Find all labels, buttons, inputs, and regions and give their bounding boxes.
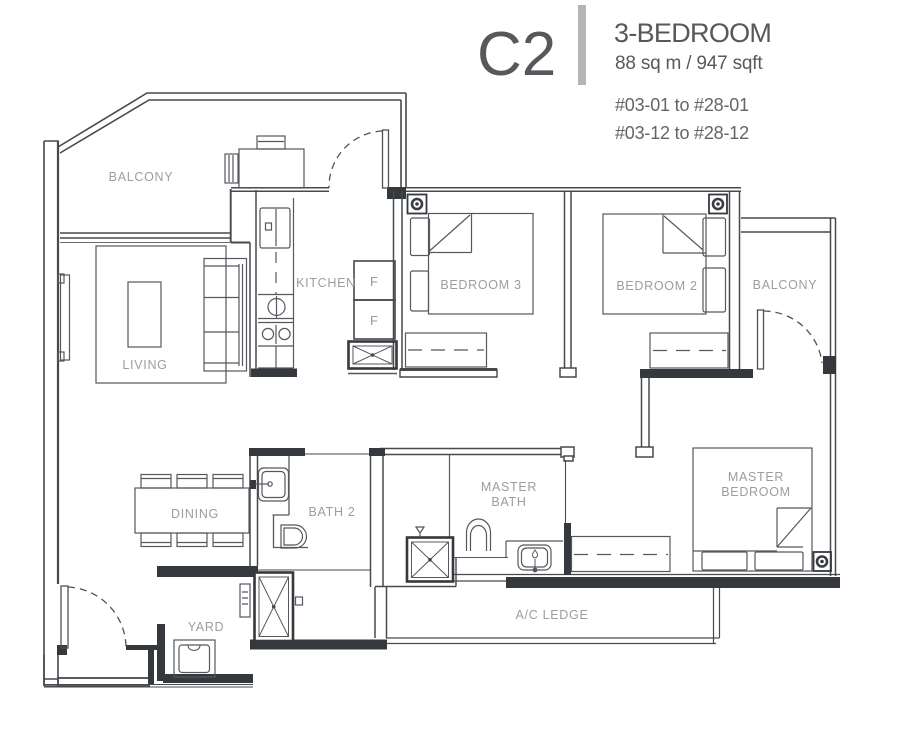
svg-text:BEDROOM 2: BEDROOM 2 (616, 279, 697, 293)
svg-text:LIVING: LIVING (122, 358, 167, 372)
svg-text:BATH: BATH (491, 495, 526, 509)
svg-text:KITCHEN: KITCHEN (296, 276, 356, 290)
svg-text:BALCONY: BALCONY (109, 170, 174, 184)
svg-text:#03-12 to #28-12: #03-12 to #28-12 (615, 123, 749, 143)
svg-text:F: F (370, 313, 378, 328)
svg-text:YARD: YARD (188, 620, 225, 634)
svg-text:MASTER: MASTER (728, 470, 784, 484)
svg-text:#03-01 to #28-01: #03-01 to #28-01 (615, 95, 749, 115)
svg-text:BEDROOM: BEDROOM (721, 485, 791, 499)
svg-text:BATH 2: BATH 2 (308, 505, 355, 519)
svg-text:DINING: DINING (171, 507, 219, 521)
svg-text:MASTER: MASTER (481, 480, 537, 494)
svg-text:3-BEDROOM: 3-BEDROOM (614, 18, 771, 48)
svg-text:A/C LEDGE: A/C LEDGE (516, 608, 589, 622)
svg-text:BEDROOM 3: BEDROOM 3 (440, 278, 521, 292)
svg-text:88 sq m / 947 sqft: 88 sq m / 947 sqft (615, 53, 763, 74)
svg-text:C2: C2 (477, 20, 556, 89)
svg-text:BALCONY: BALCONY (753, 278, 818, 292)
svg-text:F: F (370, 274, 378, 289)
